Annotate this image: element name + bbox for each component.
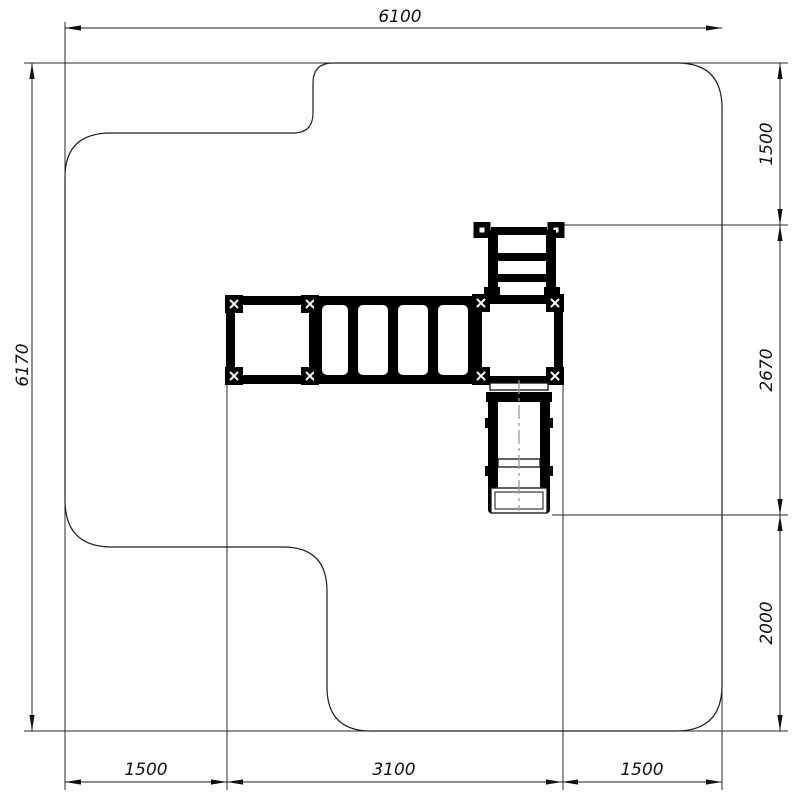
ladder-rung (488, 253, 556, 261)
arrow-left-icon (65, 25, 81, 30)
ladder-foot (484, 287, 500, 296)
plan-drawing: 6100 6170 1500 2670 2000 1500 3100 1500 (0, 0, 800, 796)
slide-lug-icon (485, 466, 489, 476)
arrow-left-icon (227, 779, 243, 784)
ladder-top-bar (491, 227, 547, 235)
safety-zone-outline (65, 63, 722, 731)
arrow-up-icon (29, 63, 34, 79)
entry-ladder (474, 222, 565, 296)
arrow-down-icon (29, 715, 34, 731)
dim-label-bottom-left: 1500 (124, 760, 167, 780)
dim-label-bottom-middle: 3100 (372, 760, 415, 780)
right-platform (472, 294, 564, 385)
walkway-panel (322, 305, 348, 375)
left-platform (225, 295, 319, 385)
arrow-down-icon (777, 499, 782, 515)
extension-lines (24, 22, 788, 790)
ladder-rail-right (546, 230, 556, 296)
post-icon (472, 367, 490, 385)
arrow-down-icon (777, 715, 782, 731)
walkway-bridge (314, 296, 477, 384)
arrow-right-icon (706, 779, 722, 784)
dimension-left: 6170 (13, 63, 35, 731)
arrow-up-icon (777, 63, 782, 79)
slide-lug-icon (549, 418, 553, 428)
arrow-down-icon (777, 209, 782, 225)
post-icon (546, 367, 564, 385)
arrow-up-icon (777, 225, 782, 241)
slide (485, 380, 553, 513)
arrow-left-icon (562, 779, 578, 784)
equipment-structure (225, 222, 565, 513)
dim-label-left: 6170 (13, 343, 33, 386)
dim-label-right-top: 1500 (757, 122, 777, 165)
slide-lug-icon (549, 466, 553, 476)
dimension-top: 6100 (65, 7, 722, 31)
post-icon (472, 294, 490, 312)
walkway-panel (438, 305, 468, 375)
dimensions-right: 1500 2670 2000 (757, 63, 783, 731)
ladder-rail-left (488, 230, 498, 296)
arrow-left-icon (65, 779, 81, 784)
walkway-panel (398, 305, 428, 375)
post-icon (225, 295, 243, 313)
hollow-post-icon (474, 222, 491, 238)
slide-lug-icon (485, 418, 489, 428)
walkway-panel (358, 305, 388, 375)
drawing-page: 6100 6170 1500 2670 2000 1500 3100 1500 (0, 0, 800, 796)
arrow-right-icon (211, 779, 227, 784)
dim-label-bottom-right: 1500 (620, 760, 663, 780)
right-platform-deck (482, 304, 554, 376)
dimensions-bottom: 1500 3100 1500 (65, 760, 722, 785)
post-icon (225, 367, 243, 385)
dim-label-right-middle: 2670 (757, 348, 777, 391)
arrow-right-icon (706, 25, 722, 30)
ladder-foot (544, 287, 560, 296)
dim-label-right-bottom: 2000 (757, 601, 777, 644)
post-icon (546, 294, 564, 312)
dim-label-top: 6100 (378, 7, 421, 27)
left-platform-deck (235, 305, 309, 375)
arrow-up-icon (777, 515, 782, 531)
arrow-right-icon (546, 779, 562, 784)
ladder-rung (488, 274, 556, 282)
